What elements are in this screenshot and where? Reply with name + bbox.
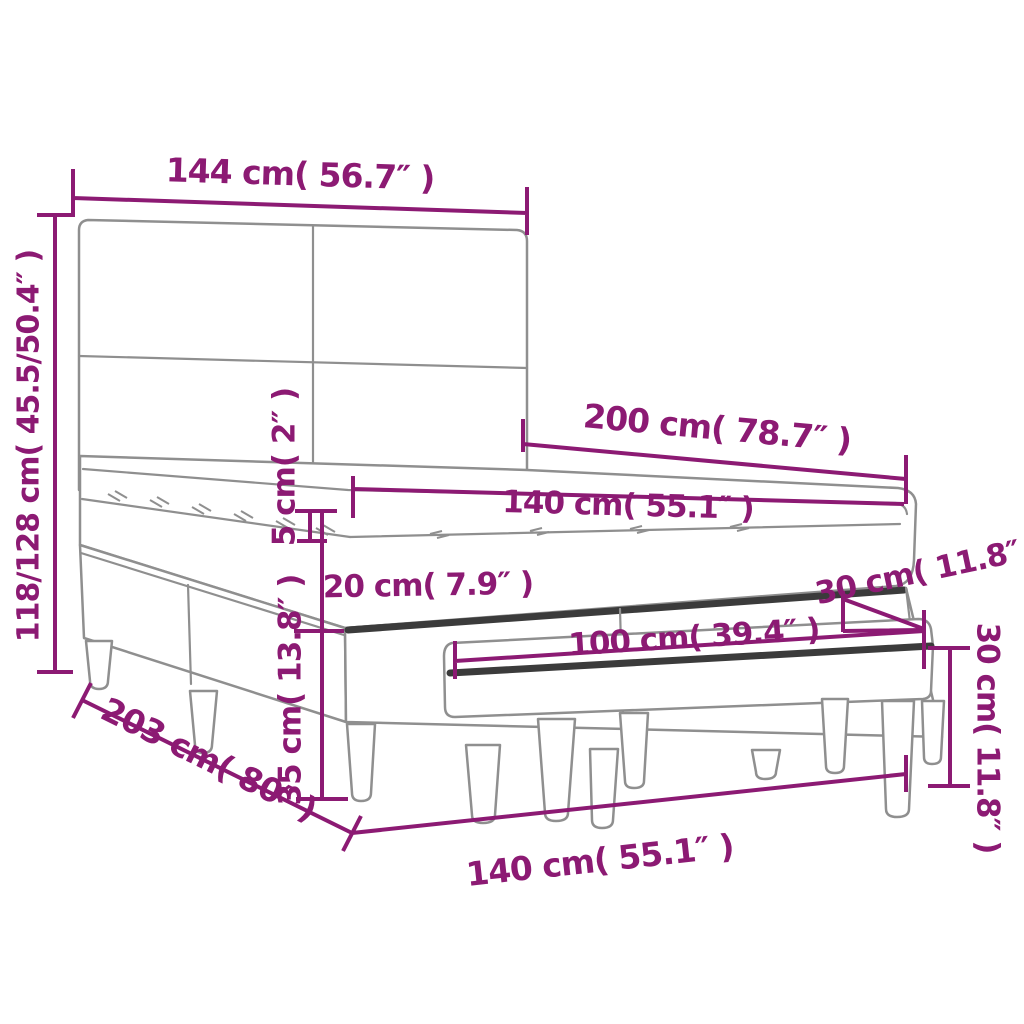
dimension-label-bed-length: 200 cm( 78.7″ ) <box>582 396 853 460</box>
dimension-label-bed-width-bottom: 140 cm( 55.1″ ) <box>464 826 735 894</box>
dimension-label-mattress-thickness: 20 cm( 7.9″ ) <box>323 566 534 606</box>
bed-leg <box>86 641 112 689</box>
diagram-svg: 144 cm( 56.7″ ) 118/128 cm( 45.5/50.4″ )… <box>0 0 1024 1024</box>
bed-leg <box>466 745 500 823</box>
bench-leg <box>538 719 575 821</box>
dimension-label-headboard-width: 144 cm( 56.7″ ) <box>165 150 435 197</box>
dimension-label-topper-thickness: 5 cm( 2″ ) <box>267 388 303 546</box>
bench-leg <box>822 699 848 773</box>
dimension-label-bench-height: 30 cm( 11.8″ ) <box>970 623 1006 854</box>
bench-leg <box>882 701 914 817</box>
bed-leg <box>590 749 618 828</box>
headboard <box>79 220 527 497</box>
dimension-label-mattress-width: 140 cm( 55.1″ ) <box>502 484 754 527</box>
bed-leg <box>752 750 780 779</box>
dimension-label-total-height: 118/128 cm( 45.5/50.4″ ) <box>12 250 47 642</box>
dimension-total-height: 118/128 cm( 45.5/50.4″ ) <box>12 215 74 672</box>
bed-leg <box>922 701 944 764</box>
bed-leg <box>347 724 375 801</box>
bench-leg <box>620 713 648 788</box>
bed-dimension-diagram: 144 cm( 56.7″ ) 118/128 cm( 45.5/50.4″ )… <box>0 0 1024 1024</box>
